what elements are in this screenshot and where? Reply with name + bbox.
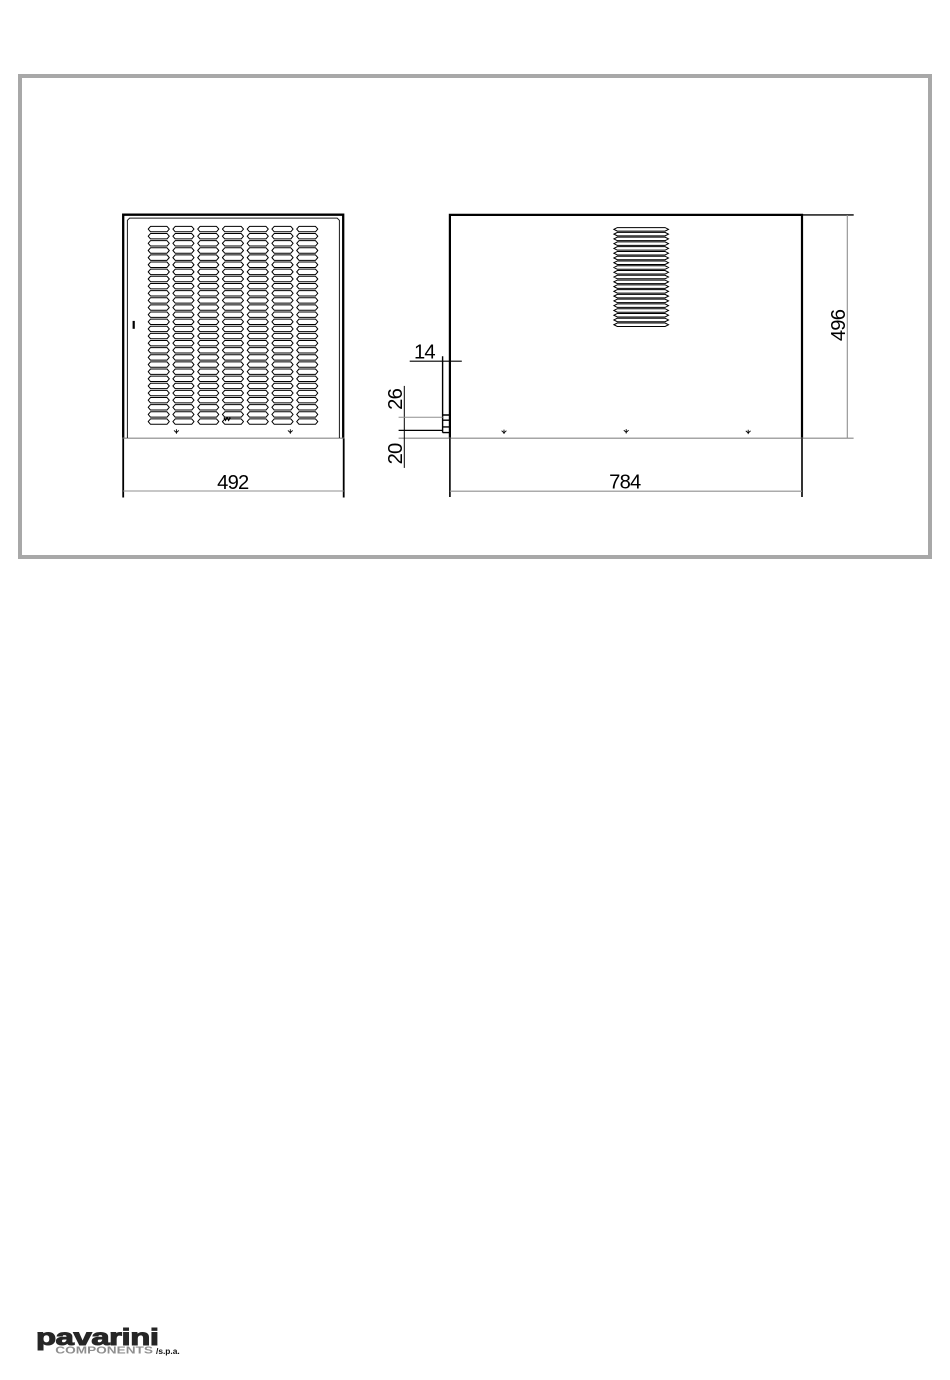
svg-text:20: 20: [385, 443, 407, 464]
svg-text:14: 14: [414, 342, 435, 364]
svg-text:496: 496: [828, 309, 850, 341]
svg-text:26: 26: [385, 388, 407, 409]
svg-text:COMPONENTS: COMPONENTS: [55, 1344, 153, 1356]
svg-text:/s.p.a.: /s.p.a.: [156, 1346, 180, 1356]
svg-text:492: 492: [217, 472, 249, 494]
svg-text:784: 784: [609, 472, 641, 494]
